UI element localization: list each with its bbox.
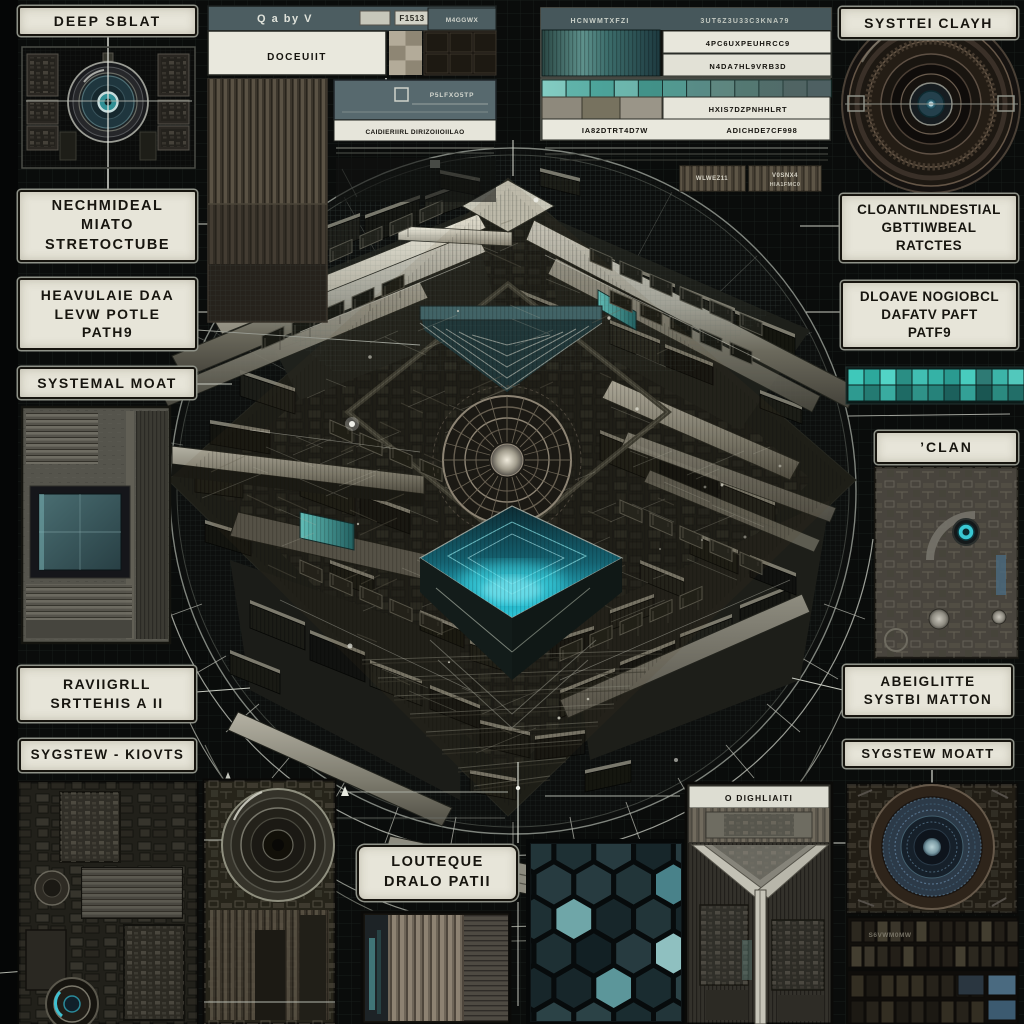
svg-text:4PC6UXPEUHRCC9: 4PC6UXPEUHRCC9 [706,39,790,48]
svg-text:DOCEUIIT: DOCEUIIT [267,52,327,63]
svg-text:M4GGWX: M4GGWX [446,17,479,24]
svg-text:V0SNX4: V0SNX4 [772,173,798,179]
svg-text:F1513: F1513 [399,14,424,23]
svg-text:ADICHDE7CF998: ADICHDE7CF998 [726,126,797,135]
svg-text:Q a by V: Q a by V [257,13,313,25]
svg-text:S6VWM0MW: S6VWM0MW [869,932,912,939]
svg-text:IA82DTRT4D7W: IA82DTRT4D7W [582,126,648,135]
svg-text:N4DA7HL9VRB3D: N4DA7HL9VRB3D [709,62,786,71]
svg-text:O DIGHLIAITI: O DIGHLIAITI [725,793,793,803]
svg-text:HCNWMTXFZI: HCNWMTXFZI [570,18,629,25]
svg-text:P5LFXO5TP: P5LFXO5TP [430,92,474,99]
svg-text:HIA1FMC0: HIA1FMC0 [770,182,801,188]
svg-text:3UT6Z3U33C3KNA79: 3UT6Z3U33C3KNA79 [700,18,789,25]
svg-text:HXIS7DZPNHHLRT: HXIS7DZPNHHLRT [709,105,788,114]
svg-text:CAIDIERIIRL DIRIZOIIOIILAO: CAIDIERIIRL DIRIZOIIOIILAO [365,129,464,136]
svg-text:WLWEZ11: WLWEZ11 [696,176,728,182]
